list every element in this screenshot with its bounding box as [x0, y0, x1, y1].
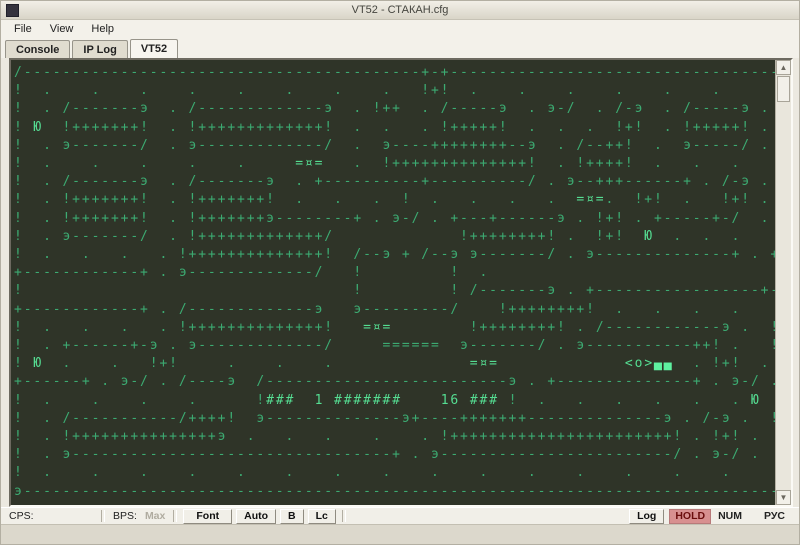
num-indicator[interactable]: NUM [714, 510, 746, 522]
log-button[interactable]: Log [629, 509, 664, 524]
tab-vt52[interactable]: VT52 [130, 39, 178, 59]
menu-bar: File View Help [1, 20, 799, 37]
max-label: Max [141, 510, 169, 522]
menu-file[interactable]: File [5, 21, 41, 37]
b-button[interactable]: B [280, 509, 304, 524]
menu-view[interactable]: View [41, 21, 83, 37]
status-separator [342, 510, 346, 522]
status-separator [173, 510, 177, 522]
scroll-down-icon[interactable]: ▼ [776, 490, 791, 505]
cps-label: CPS: [5, 510, 97, 522]
tab-console[interactable]: Console [5, 40, 70, 58]
auto-button[interactable]: Auto [236, 509, 276, 524]
terminal-frame: /---------------------------------------… [9, 58, 793, 507]
bps-label: BPS: [109, 510, 141, 522]
scroll-up-icon[interactable]: ▲ [776, 60, 791, 75]
scrollbar-thumb[interactable] [777, 76, 790, 102]
font-button[interactable]: Font [183, 509, 232, 524]
lc-button[interactable]: Lc [308, 509, 336, 524]
window-title: VT52 - СТАКАН.cfg [1, 4, 799, 16]
terminal-screen[interactable]: /---------------------------------------… [11, 60, 775, 505]
hold-indicator[interactable]: HOLD [669, 509, 711, 524]
tab-ip-log[interactable]: IP Log [72, 40, 127, 58]
rus-indicator[interactable]: РУС [760, 510, 789, 522]
status-bar: CPS: BPS: Max Font Auto B Lc Log HOLD NU… [1, 507, 799, 524]
tab-strip: Console IP Log VT52 [1, 37, 799, 58]
vertical-scrollbar[interactable]: ▲ ▼ [775, 60, 791, 505]
window-bottom-strip [1, 524, 799, 544]
status-separator [101, 510, 105, 522]
menu-help[interactable]: Help [82, 21, 123, 37]
app-window: VT52 - СТАКАН.cfg File View Help Console… [0, 0, 800, 545]
terminal-text: /---------------------------------------… [11, 60, 775, 501]
title-bar: VT52 - СТАКАН.cfg [1, 1, 799, 20]
